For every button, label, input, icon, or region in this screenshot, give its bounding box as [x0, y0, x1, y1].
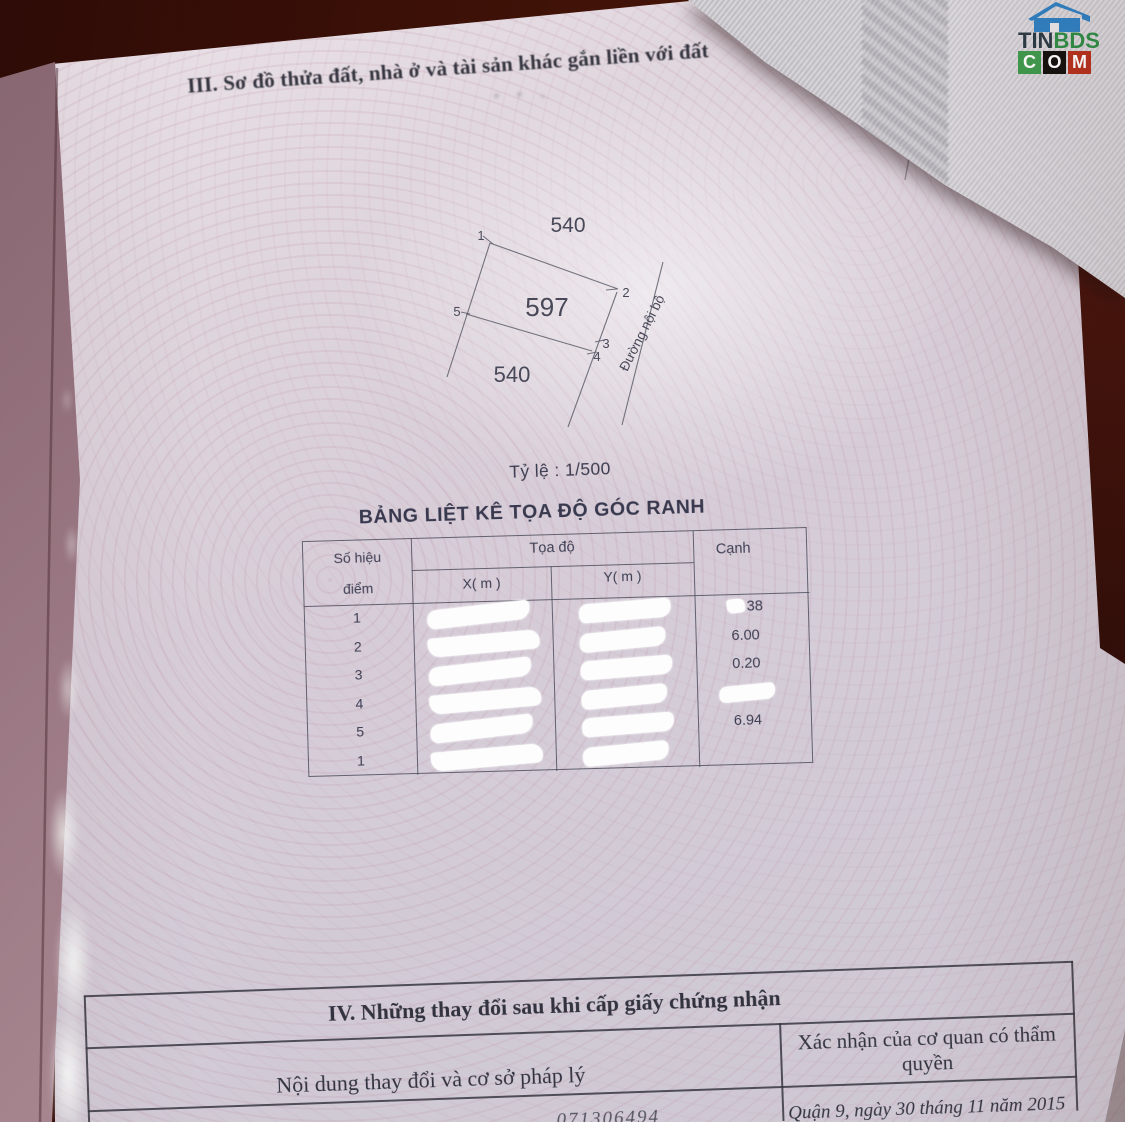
col-header-point-1: Số hiệu [303, 548, 411, 567]
edge-cell: 6.94 [700, 711, 796, 730]
edge-value: 38 [747, 598, 764, 614]
logo-letter-o: O [1043, 51, 1066, 74]
edge-cell [699, 683, 795, 703]
col-header-change-content: Nội dung thay đổi và cơ sở pháp lý [181, 1059, 682, 1102]
photo-of-land-certificate: III. Sơ đồ thửa đất, nhà ở và tài sản kh… [0, 0, 1125, 1122]
edge-value: 6.94 [734, 712, 763, 729]
edge-value: 0.20 [732, 655, 761, 672]
redaction-mark-y [580, 654, 673, 680]
point-number: 1 [319, 609, 395, 627]
adjacent-plot-top-label: 540 [550, 214, 585, 237]
point-2-label: 2 [622, 285, 629, 300]
redaction-mark [726, 598, 746, 614]
point-5-label: 5 [453, 304, 460, 319]
edge-value: 6.00 [731, 627, 760, 644]
adjacent-plot-bottom-label: 540 [494, 362, 531, 387]
redaction-mark-y [581, 683, 668, 710]
footer-fragment: 071306494 [388, 1100, 828, 1122]
redaction-mark-y [579, 626, 666, 653]
coordinate-table: Số hiệu điểm Tọa độ X( m ) Y( m ) Cạnh 1… [302, 527, 813, 777]
point-number: 3 [320, 666, 396, 684]
redaction-mark-x [427, 629, 540, 658]
col-header-y: Y( m ) [551, 566, 694, 586]
col-header-point-2: điểm [304, 579, 412, 598]
redaction-mark [719, 682, 776, 703]
redaction-mark-x [430, 743, 543, 772]
tick-point-2 [606, 289, 617, 290]
logo-letter-c: C [1018, 51, 1041, 74]
point-1-label: 1 [478, 229, 485, 243]
tick-point-1 [483, 236, 493, 244]
col-header-x: X( m ) [412, 573, 551, 593]
point-number: 4 [321, 694, 397, 712]
road-label: Đường nội bộ [616, 292, 667, 373]
plot-diagram: 1 2 3 4 5 540 597 540 Đường nội bộ [420, 180, 760, 450]
col-header-coords: Tọa độ [411, 536, 693, 560]
plot-top-edge [490, 243, 618, 289]
point-number: 1 [323, 751, 399, 769]
redaction-mark-x [429, 713, 534, 744]
edge-cell: 0.20 [698, 654, 794, 673]
redaction-mark-y [581, 711, 674, 737]
redaction-mark-x [426, 599, 531, 630]
point-number: 5 [322, 722, 398, 740]
edge-cell [701, 740, 797, 743]
redaction-mark-x [429, 686, 542, 715]
logo-tin: TIN [1018, 28, 1053, 53]
point-number: 2 [320, 638, 396, 656]
col-header-edge: Cạnh [693, 540, 773, 558]
redaction-mark-y [578, 597, 671, 623]
edge-cell: 6.00 [697, 626, 793, 645]
tinbds-watermark-logo: TINBDS C O M [1012, 2, 1108, 80]
logo-bds: BDS [1053, 28, 1099, 53]
logo-com: C O M [1018, 51, 1091, 74]
col-header-authority: Xác nhận của cơ quan có thẩm quyền [789, 1021, 1065, 1081]
redaction-mark-x [428, 656, 533, 687]
plot-number-label: 597 [525, 292, 568, 322]
point-4-label: 4 [593, 349, 600, 364]
tick-point-5 [461, 312, 470, 314]
redaction-mark-y [582, 740, 669, 767]
faint-smudge [488, 88, 558, 102]
logo-letter-m: M [1068, 51, 1091, 74]
point-3-label: 3 [602, 336, 609, 351]
edge-cell: 38 [697, 597, 793, 616]
